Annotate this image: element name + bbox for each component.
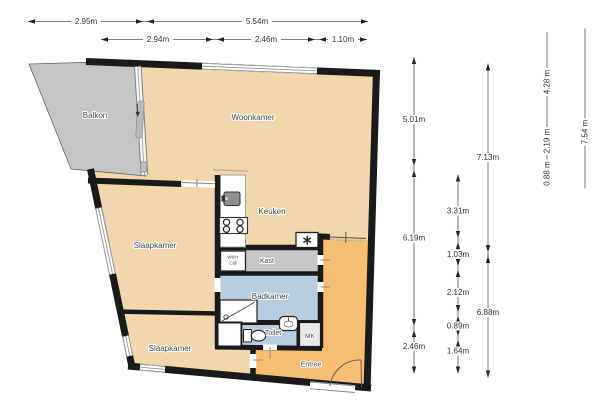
- svg-text:3.31m: 3.31m: [447, 207, 470, 216]
- svg-text:2.46m: 2.46m: [255, 35, 278, 44]
- svg-text:Slaapkamer: Slaapkamer: [149, 344, 192, 353]
- svg-text:Badkamer: Badkamer: [252, 292, 289, 301]
- svg-text:0.88 m: 0.88 m: [543, 161, 552, 186]
- svg-text:2.94m: 2.94m: [147, 35, 170, 44]
- svg-text:Keuken: Keuken: [258, 207, 285, 216]
- svg-text:MK: MK: [305, 333, 315, 340]
- svg-text:2.95m: 2.95m: [75, 17, 98, 26]
- svg-text:6.19m: 6.19m: [403, 234, 426, 243]
- svg-text:WM+: WM+: [227, 255, 239, 261]
- svg-text:7.13m: 7.13m: [477, 153, 500, 162]
- svg-text:1.03m: 1.03m: [447, 250, 470, 259]
- svg-text:Entree: Entree: [301, 362, 322, 369]
- svg-text:Cdl: Cdl: [229, 261, 236, 267]
- svg-text:2.46m: 2.46m: [403, 342, 426, 351]
- svg-text:2.19 m: 2.19 m: [543, 128, 552, 153]
- svg-text:4.28 m: 4.28 m: [543, 69, 552, 94]
- svg-text:Balkon: Balkon: [83, 111, 107, 120]
- svg-text:5.54m: 5.54m: [246, 17, 269, 26]
- svg-text:6.88m: 6.88m: [477, 308, 500, 317]
- svg-text:Toilet: Toilet: [265, 330, 281, 337]
- svg-text:1.64m: 1.64m: [447, 347, 470, 356]
- svg-text:Kast: Kast: [260, 258, 274, 265]
- svg-text:0.89m: 0.89m: [447, 322, 470, 331]
- svg-text:7.54 m: 7.54 m: [581, 119, 590, 144]
- svg-text:2.12m: 2.12m: [447, 288, 470, 297]
- svg-text:Woonkamer: Woonkamer: [232, 113, 275, 122]
- svg-text:5.01m: 5.01m: [403, 115, 426, 124]
- svg-text:1.10m: 1.10m: [332, 35, 355, 44]
- svg-text:Slaapkamer: Slaapkamer: [134, 241, 177, 250]
